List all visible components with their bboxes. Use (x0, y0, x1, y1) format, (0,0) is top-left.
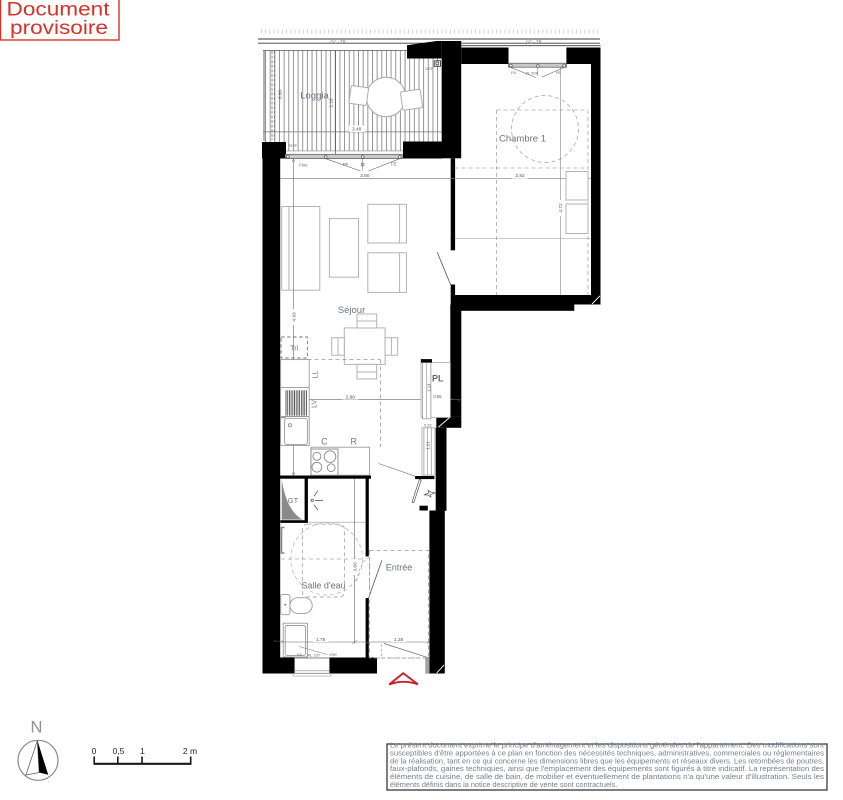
svg-text:N: N (31, 719, 43, 737)
svg-text:R: R (351, 437, 358, 447)
svg-text:GT: GT (288, 496, 299, 505)
svg-text:4.93: 4.93 (291, 312, 297, 322)
svg-text:4.72: 4.72 (558, 203, 564, 213)
svg-text:DEP: DEP (425, 66, 434, 71)
svg-text:Chambre 1: Chambre 1 (499, 134, 546, 145)
svg-text:VRE: VRE (329, 652, 338, 657)
svg-text:PL: PL (432, 374, 444, 384)
svg-text:0: 0 (92, 746, 97, 756)
svg-text:1.14: 1.14 (427, 383, 432, 392)
svg-text:3.60: 3.60 (352, 562, 358, 572)
svg-text:1: 1 (140, 746, 145, 756)
svg-text:Fixe: Fixe (299, 162, 308, 167)
svg-text:0,5: 0,5 (113, 746, 125, 756)
svg-text:1.21: 1.21 (426, 441, 431, 450)
svg-text:2.18: 2.18 (328, 98, 333, 107)
svg-text:0.23: 0.23 (424, 423, 431, 427)
svg-text:Meu.: Meu. (274, 639, 281, 643)
svg-text:2 m: 2 m (183, 746, 197, 756)
svg-text:Salle d'eau: Salle d'eau (301, 581, 345, 591)
svg-text:0.86: 0.86 (278, 90, 283, 99)
svg-text:2.82: 2.82 (515, 173, 525, 179)
svg-text:C: C (321, 437, 328, 447)
svg-text:FA: FA (297, 652, 302, 657)
svg-text:0.55: 0.55 (433, 394, 442, 399)
svg-text:PF: PF (343, 162, 349, 167)
svg-text:AL 50il: AL 50il (525, 70, 537, 75)
svg-text:Seuil: Seuil (288, 144, 297, 148)
svg-text:2.90: 2.90 (346, 394, 356, 400)
svg-text:FA: FA (511, 70, 516, 75)
svg-text:Entrée: Entrée (386, 563, 413, 573)
svg-text:FE: FE (391, 162, 397, 167)
svg-text:1.76: 1.76 (316, 637, 326, 643)
svg-text:3.50: 3.50 (360, 173, 370, 179)
svg-text:1.25: 1.25 (394, 637, 404, 643)
svg-text:3.48: 3.48 (352, 127, 362, 133)
svg-text:éléments définis dans la notic: éléments définis dans la notice descript… (390, 780, 617, 789)
svg-text:AL 120: AL 120 (307, 652, 320, 657)
svg-text:provisoire: provisoire (10, 17, 108, 39)
svg-text:LL: LL (312, 371, 319, 379)
svg-text:Loggia: Loggia (300, 91, 329, 102)
svg-text:GC - TR: GC - TR (330, 40, 346, 45)
svg-text:Tri: Tri (290, 344, 299, 353)
svg-text:LV: LV (312, 400, 319, 408)
svg-text:GC - TR: GC - TR (526, 40, 542, 45)
